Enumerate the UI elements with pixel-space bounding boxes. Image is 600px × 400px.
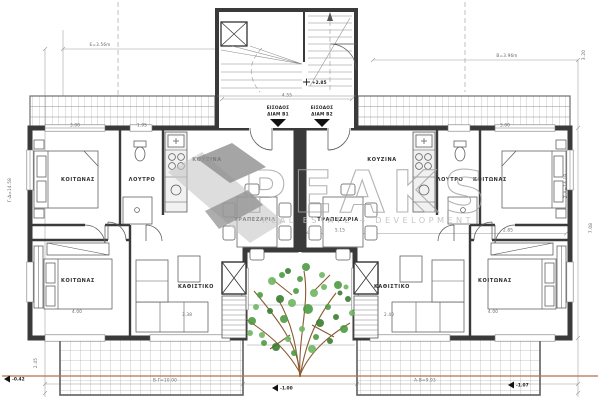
dim-right-upper: 3.20: [581, 50, 586, 60]
dim-bed1-right: 3.00: [500, 123, 510, 128]
hall-level: +2.85: [312, 80, 327, 86]
dim-bed2-right: 4.00: [488, 309, 498, 314]
level-terrace-left: -0.42: [12, 377, 25, 383]
tree: [246, 263, 355, 377]
room-label-bedroom: ΚΟΙΤΩΝΑΣ: [61, 177, 95, 183]
dim-bed1-left: 3.00: [70, 123, 80, 128]
hall-width-dim: 4.55: [282, 93, 292, 98]
watermark-tagline: REAL ESTATE + DEVELOPMENT: [262, 215, 474, 225]
entrance-b1-label-line1: ΕΙΣΟΔΟΣ: [267, 105, 289, 111]
dim-living-right: 2.40: [384, 312, 394, 317]
stair-core: +2.85 4.55 ΕΙΣΟΔΟΣ ΔΙΑΜ Β1 ΕΙΣΟΔΟΣ ΔΙΑΜ …: [217, 10, 356, 128]
dim-right-lower: 7.08: [588, 223, 593, 233]
floor-plan-page: +2.85 4.55 ΕΙΣΟΔΟΣ ΔΙΑΜ Β1 ΕΙΣΟΔΟΣ ΔΙΑΜ …: [0, 0, 600, 400]
dim-width-right: 5.15: [335, 228, 345, 233]
dim-right-edge: Ζ-Α=14.19: [563, 174, 568, 199]
dim-bottom-left: Β-Γ=10.00: [153, 378, 177, 383]
room-label-living: ΚΑΘΙΣΤΙΚΟ: [178, 284, 214, 290]
room-label-bathroom: ΛΟΥΤΡΟ: [129, 177, 156, 183]
dim-top-left: Ε=3.56m: [90, 42, 111, 47]
entrance-b1-label-line2: ΔΙΑΜ Β1: [267, 112, 289, 118]
balcony-top-right: [358, 96, 570, 128]
room-label-bedroom: ΚΟΙΤΩΝΑΣ: [61, 278, 95, 284]
terrace-bottom-left: [60, 338, 243, 395]
dim-living-left: 3.38: [182, 312, 192, 317]
dim-terrace-left: 2.45: [33, 358, 38, 368]
room-label-living: ΚΑΘΙΣΤΙΚΟ: [374, 284, 410, 290]
level-terrace-right: -1.07: [516, 383, 529, 389]
dim-bath-left: 1.95: [137, 123, 147, 128]
tree-branches: [246, 271, 350, 377]
room-label-bedroom: ΚΟΙΤΩΝΑΣ: [478, 278, 512, 284]
dim-top-right: Β=3.96m: [496, 53, 517, 58]
floor-plan-drawing: +2.85 4.55 ΕΙΣΟΔΟΣ ΔΙΑΜ Β1 ΕΙΣΟΔΟΣ ΔΙΑΜ …: [0, 0, 600, 400]
level-garden: -1.00: [280, 386, 293, 392]
dim-bottom-right: Α-Β=9.93: [414, 378, 436, 383]
dim-bed2-left: 4.00: [72, 309, 82, 314]
entrance-b2-label-line2: ΔΙΑΜ Β2: [311, 112, 333, 118]
entrance-b2-label-line1: ΕΙΣΟΔΟΣ: [311, 105, 333, 111]
dim-left-edge: Γ-Δ=14.58: [7, 178, 12, 202]
dim-diag-right: 2.85: [503, 228, 513, 233]
balcony-top-left: [30, 96, 215, 128]
